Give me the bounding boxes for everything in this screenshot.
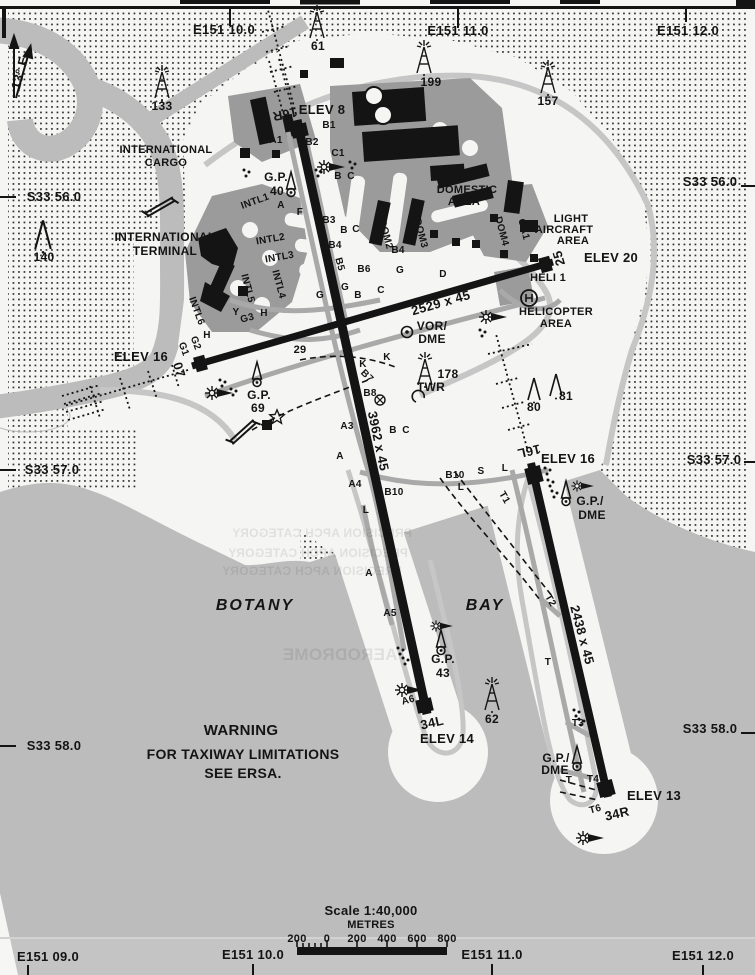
scale-200l: 200 [287,933,306,945]
twy-b1: B1 [322,120,336,131]
twy-b-2: B [340,225,348,236]
twy-t4: T4 [587,774,599,785]
twy-c-2: C [352,224,360,235]
elev-16-rwy16l: ELEV 16 [541,451,595,466]
intl-cargo-2: CARGO [145,157,188,169]
twy-y: Y [233,307,240,318]
twy-l-1: L [502,463,508,474]
twy-t3: T3 [572,718,584,729]
scale-0: 0 [324,933,330,945]
twy-g-e: G [396,265,404,276]
scale-800: 800 [437,933,456,945]
elev-8: ELEV 8 [299,102,346,117]
grid-bottom-e15110: E151 10.0 [222,947,284,962]
intl-terminal-2: TERMINAL [133,244,197,258]
twy-b2: B2 [305,137,319,148]
gp-40-label: G.P. [264,170,288,184]
gp-40-value: 40 [270,184,284,198]
grid-top-e15110: E151 10.0 [193,22,255,37]
twy-f: F [297,207,303,218]
twy-b-3: B [354,290,362,301]
grid-right-s3358: S33 58.0 [683,721,737,736]
domestic-area-1: DOMESTIC [437,184,497,196]
tower-label: TWR [417,380,445,394]
warning-2: FOR TAXIWAY LIMITATIONS [147,746,340,762]
twy-a3: A3 [340,421,354,432]
bay-label: BAY [466,597,505,614]
obstacle-178: 178 [438,367,459,381]
grid-left-s3358: S33 58.0 [27,738,81,753]
twy-b8: B8 [363,388,377,399]
obstacle-80: 80 [527,400,541,414]
helicopter-area-1: HELICOPTER [519,306,593,318]
gp-dme-16l-2: DME [578,508,606,522]
twy-b10-e: B10 [445,470,464,481]
obstacle-133: 133 [152,99,173,113]
twy-b6: B6 [357,264,371,275]
elev-14: ELEV 14 [420,731,475,746]
warning-3: SEE ERSA. [204,765,281,781]
twy-t-1: T [545,657,551,668]
grid-bottom-e15111: E151 11.0 [461,947,522,962]
twy-h-1: H [260,308,268,319]
gp-43-value: 43 [436,666,450,680]
aerodrome-chart: E151 10.0E151 11.0E151 12.0S33 56.0S33 5… [0,0,755,975]
twy-b-s: B [389,425,397,436]
twy-a5: A5 [383,608,397,619]
scale-units: METRES [347,919,395,931]
twy-s: S [478,466,485,477]
scale-600: 600 [407,933,426,945]
twy-g-1: G [341,282,349,293]
botany-label: BOTANY [216,597,294,614]
gp-dme-16l-1: G.P./ [576,494,604,508]
elev-20: ELEV 20 [584,250,638,265]
elev-16-rwy07: ELEV 16 [114,349,168,364]
ghost-text-4: AERODROME [282,645,397,664]
twy-b3: B3 [322,215,336,226]
obstacle-81: 81 [559,389,573,403]
gp-43-label: G.P. [431,652,455,666]
grid-bottom-e15112: E151 12.0 [672,948,734,963]
grid-left-s3357: S33 57.0 [25,462,79,477]
grid-right-s3356: S33 56.0 [683,174,737,189]
grid-top-e15111: E151 11.0 [427,23,488,38]
vor-dme-label: DME [418,332,446,346]
intl-terminal-1: INTERNATIONAL [114,230,215,244]
twy-a4: A4 [348,479,362,490]
twy-c-n: C [347,171,355,182]
twy-l-3: L [363,505,369,516]
twy-a-s1: A [336,451,344,462]
chart-canvas: E151 10.0E151 11.0E151 12.0S33 56.0S33 5… [0,0,755,975]
grid-left-s3356: S33 56.0 [27,189,81,204]
twy-b-n: B [334,171,342,182]
scale-title: Scale 1:40,000 [324,903,417,918]
twy-t-2: T [566,775,572,786]
twy-c1: C1 [331,148,345,159]
twy-b10-w: B10 [384,487,403,498]
scale-200r: 200 [347,933,366,945]
twy-h-2: H [203,330,211,341]
twy-c-s: C [402,425,410,436]
light-aircraft-3: AREA [557,235,589,247]
intl-cargo-1: INTERNATIONAL [120,144,213,156]
twy-b4-e: B4 [391,245,405,256]
ghost-text-1: PRECISION APCH CATEGORY [232,526,412,540]
obstacle-157: 157 [538,94,559,108]
dom-1: DOM 1 [376,149,412,161]
gp-dme-34r-2: DME [541,763,569,777]
domestic-area-2: AREA [448,196,480,208]
gp-69-value: 69 [251,401,265,415]
grid-bottom-e15109: E151 09.0 [17,949,79,964]
helicopter-area-2: AREA [540,318,572,330]
twy-d: D [439,269,447,280]
twy-a1: A1 [269,135,283,146]
twy-c-3: C [377,285,385,296]
twy-g-2: G [316,290,324,301]
hold-29: 29 [294,344,307,356]
obstacle-61: 61 [311,39,325,53]
twy-a-n: A [277,200,285,211]
twy-l-2: L [458,482,464,493]
twy-b4: B4 [328,240,342,251]
twy-k-2: K [383,352,391,363]
warning-1: WARNING [204,722,279,739]
grid-top-e15112: E151 12.0 [657,23,719,38]
gp-69-label: G.P. [247,388,271,402]
obstacle-140: 140 [34,250,55,264]
ghost-text-2: PRECISION APCH CATEGORY [228,546,408,560]
building-square [262,420,272,430]
vor-label: VOR/ [417,319,448,333]
ghost-text-3: PRECISION APCH CATEGORY [222,564,402,578]
scale-400: 400 [377,933,396,945]
grid-right-s3357: S33 57.0 [687,452,741,467]
obstacle-199: 199 [421,75,442,89]
heli-1: HELI 1 [530,272,566,284]
elev-13: ELEV 13 [627,788,681,803]
obstacle-62: 62 [485,712,499,726]
